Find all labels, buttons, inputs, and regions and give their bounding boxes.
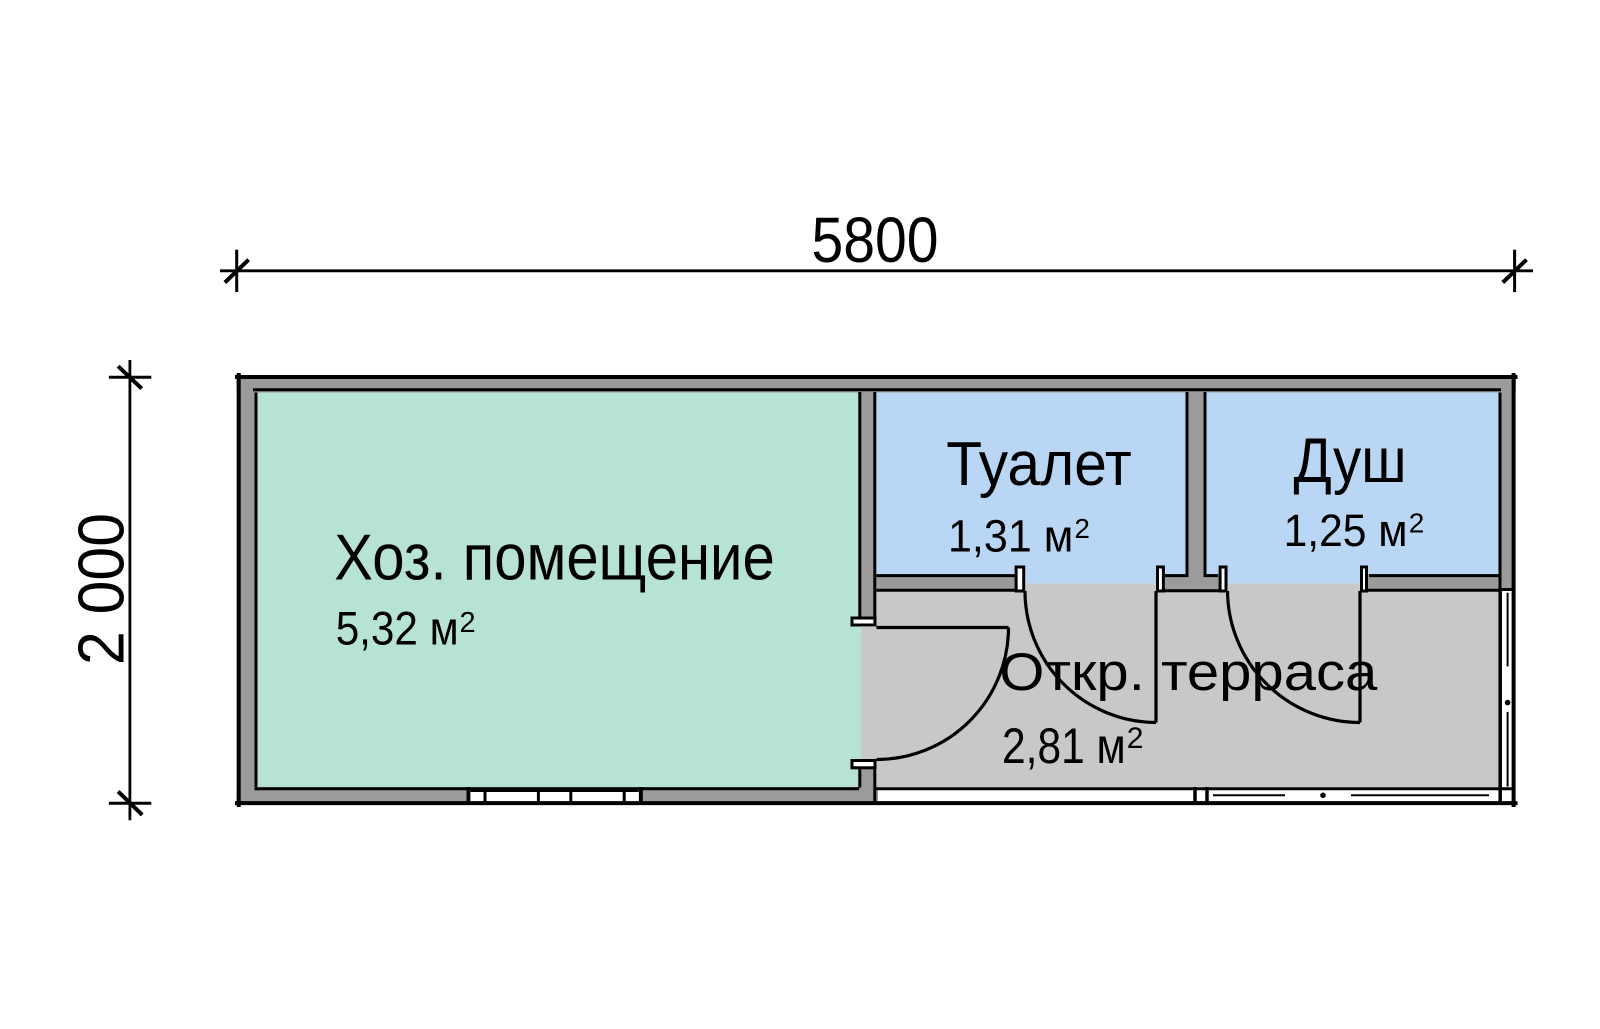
svg-text:2: 2 <box>1127 722 1144 755</box>
svg-text:2: 2 <box>460 607 476 639</box>
svg-text:2,81 м: 2,81 м <box>1002 718 1126 774</box>
svg-text:Душ: Душ <box>1294 426 1407 496</box>
svg-text:2: 2 <box>1409 507 1425 538</box>
svg-text:Откр. терраса: Откр. терраса <box>999 643 1378 702</box>
svg-text:1,31 м: 1,31 м <box>948 511 1073 562</box>
svg-text:5,32 м: 5,32 м <box>336 602 459 655</box>
svg-text:5800: 5800 <box>812 204 939 276</box>
svg-text:1,25 м: 1,25 м <box>1284 505 1408 556</box>
svg-text:Туалет: Туалет <box>946 429 1132 499</box>
svg-text:2: 2 <box>1074 513 1090 544</box>
svg-text:2 000: 2 000 <box>65 513 138 665</box>
svg-text:Хоз. помещение: Хоз. помещение <box>334 521 775 594</box>
